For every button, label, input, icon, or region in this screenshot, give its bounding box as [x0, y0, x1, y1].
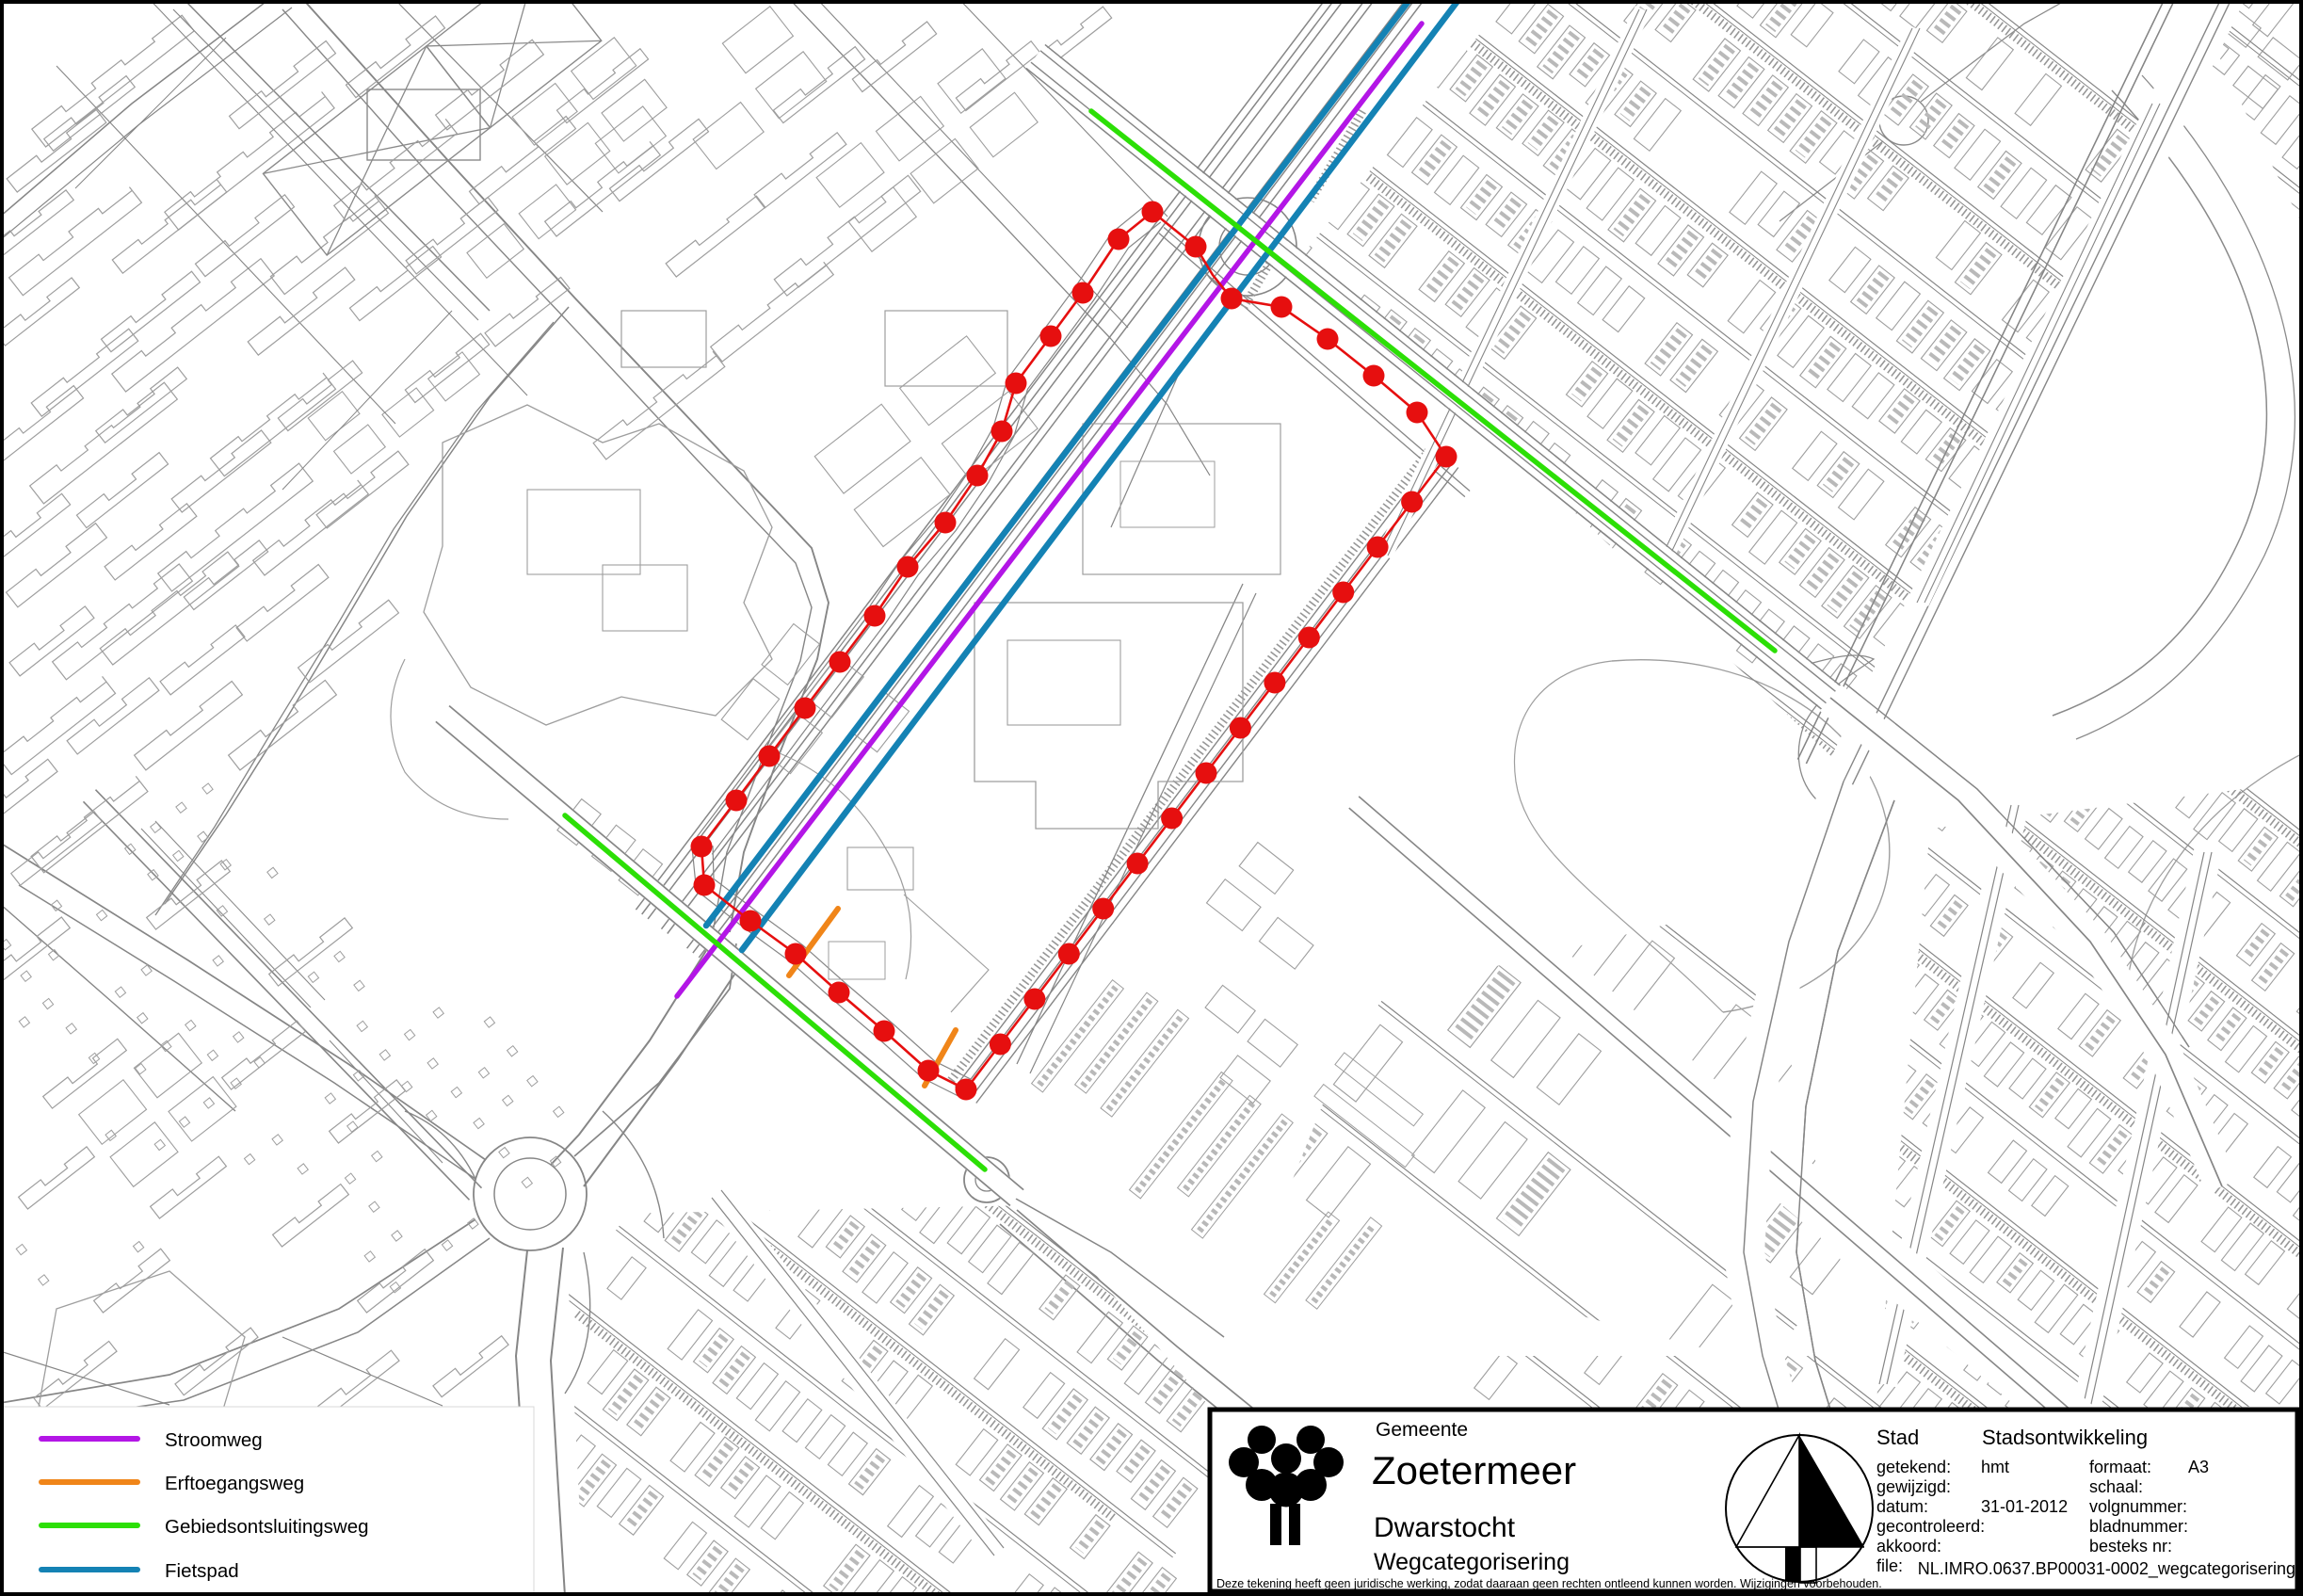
- svg-text:NL.IMRO.0637.BP00031-0002_wegc: NL.IMRO.0637.BP00031-0002_wegcategoriser…: [1918, 1559, 2295, 1579]
- svg-text:31-01-2012: 31-01-2012: [1981, 1497, 2068, 1516]
- svg-text:Stad: Stad: [1876, 1426, 1919, 1449]
- svg-text:Dwarstocht: Dwarstocht: [1374, 1512, 1516, 1543]
- svg-text:Stroomweg: Stroomweg: [165, 1429, 263, 1451]
- svg-text:gecontroleerd:: gecontroleerd:: [1876, 1517, 1985, 1536]
- svg-text:Gemeente: Gemeente: [1376, 1419, 1468, 1441]
- svg-text:besteks nr:: besteks nr:: [2089, 1537, 2172, 1556]
- svg-text:Gebiedsontsluitingsweg: Gebiedsontsluitingsweg: [165, 1516, 369, 1538]
- svg-text:Wegcategorisering: Wegcategorisering: [1374, 1549, 1570, 1575]
- svg-text:gewijzigd:: gewijzigd:: [1876, 1477, 1951, 1496]
- svg-text:datum:: datum:: [1876, 1497, 1928, 1516]
- svg-text:hmt: hmt: [1981, 1458, 2009, 1476]
- svg-text:formaat:: formaat:: [2089, 1458, 2151, 1476]
- svg-text:Fietspad: Fietspad: [165, 1560, 239, 1582]
- svg-text:A3: A3: [2188, 1458, 2209, 1476]
- svg-text:Erftoegangsweg: Erftoegangsweg: [165, 1473, 304, 1494]
- svg-text:getekend:: getekend:: [1876, 1458, 1951, 1476]
- svg-text:akkoord:: akkoord:: [1876, 1537, 1941, 1556]
- svg-text:Zoetermeer: Zoetermeer: [1372, 1448, 1576, 1492]
- svg-text:volgnummer:: volgnummer:: [2089, 1497, 2187, 1516]
- svg-text:schaal:: schaal:: [2089, 1477, 2143, 1496]
- svg-text:file:: file:: [1876, 1556, 1903, 1575]
- svg-text:Stadsontwikkeling: Stadsontwikkeling: [1982, 1426, 2148, 1449]
- svg-text:bladnummer:: bladnummer:: [2089, 1517, 2188, 1536]
